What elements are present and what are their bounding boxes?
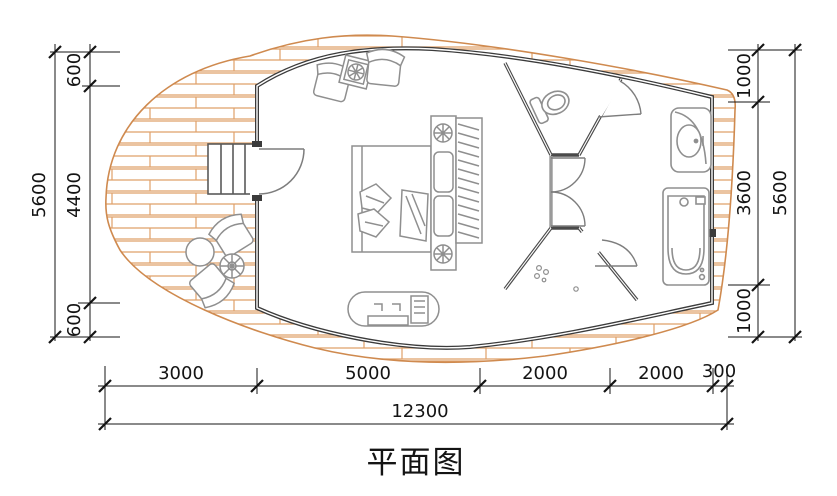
tv-console — [348, 292, 439, 326]
outdoor-table — [186, 238, 214, 266]
door-jamb — [252, 141, 262, 147]
bed — [352, 146, 431, 252]
headboard-cushion — [434, 196, 453, 236]
wardrobe — [456, 118, 482, 243]
headboard-unit — [431, 116, 456, 270]
bathtub-fixture — [663, 188, 709, 285]
door-jamb — [252, 195, 262, 201]
dim-label: 3000 — [158, 363, 204, 384]
drain — [694, 139, 697, 142]
dim-label: 600 — [64, 303, 85, 337]
entry-door-opening — [250, 146, 264, 196]
tub-control — [696, 197, 705, 204]
dim-label: 5600 — [770, 170, 791, 216]
dim-label: 3600 — [734, 170, 755, 216]
tub-faucet-icon — [680, 198, 688, 206]
floor-plan-page: 600 4400 600 5600 1000 3600 1000 5600 30… — [0, 0, 837, 496]
headboard-cushion — [434, 152, 453, 192]
dim-label: 12300 — [391, 401, 448, 422]
drawing-title: 平面图 — [367, 445, 466, 481]
dim-label: 5000 — [345, 363, 391, 384]
sink-vanity — [671, 108, 711, 172]
dim-label: 5600 — [29, 172, 50, 218]
dim-label: 1000 — [734, 288, 755, 334]
outdoor-plant-table — [220, 254, 244, 278]
dim-label: 1000 — [734, 53, 755, 99]
armchair-right — [364, 48, 406, 87]
console-shelf — [368, 316, 408, 325]
dim-label: 2000 — [638, 363, 684, 384]
dim-label: 4400 — [64, 172, 85, 218]
tv-unit — [411, 296, 428, 323]
floor-plan-canvas: 600 4400 600 5600 1000 3600 1000 5600 30… — [0, 0, 837, 496]
dim-label: 2000 — [522, 363, 568, 384]
dim-label: 600 — [64, 53, 85, 87]
dim-label: 300 — [702, 361, 736, 382]
